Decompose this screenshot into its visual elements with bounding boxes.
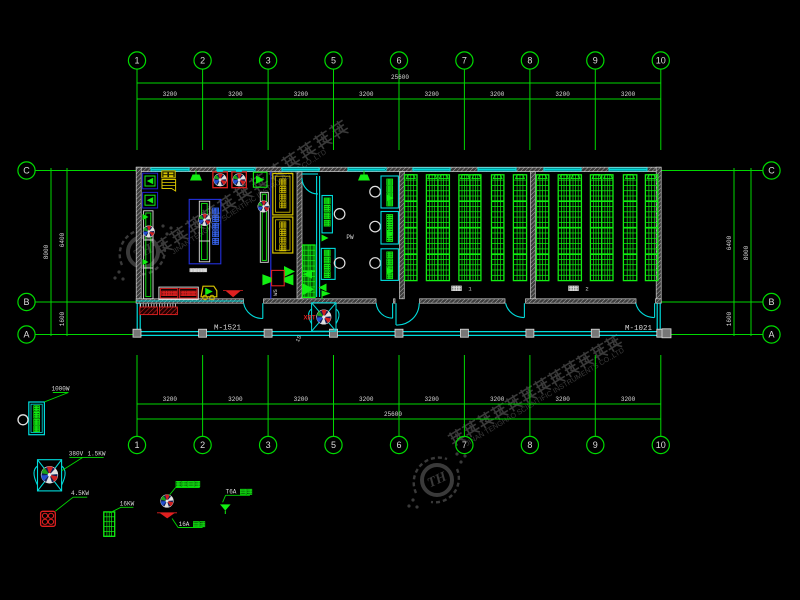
svg-text:3: 3	[266, 56, 271, 66]
svg-text:25600: 25600	[391, 74, 409, 81]
svg-text:A: A	[23, 330, 29, 340]
svg-text:3200: 3200	[228, 396, 243, 403]
svg-text:B: B	[768, 297, 774, 307]
svg-text:3200: 3200	[490, 91, 505, 98]
svg-text:WS: WS	[272, 289, 279, 296]
svg-text:7: 7	[462, 440, 467, 450]
svg-text:3200: 3200	[555, 396, 570, 403]
svg-text:9: 9	[593, 56, 598, 66]
svg-text:3200: 3200	[621, 91, 636, 98]
svg-text:6400: 6400	[726, 235, 733, 250]
svg-text:3200: 3200	[555, 91, 570, 98]
svg-text:M-1521: M-1521	[214, 325, 242, 333]
svg-text:25600: 25600	[384, 411, 402, 418]
svg-text:2: 2	[200, 56, 205, 66]
svg-text:1000W: 1000W	[51, 386, 69, 393]
svg-text:1: 1	[134, 56, 139, 66]
svg-text:1.5KW: 1.5KW	[87, 450, 105, 457]
svg-text:1600: 1600	[726, 311, 733, 326]
svg-text:16A: 16A	[179, 521, 190, 528]
svg-text:9: 9	[593, 440, 598, 450]
svg-text:4.5KW: 4.5KW	[71, 490, 89, 497]
svg-text:XBT: XBT	[304, 316, 316, 322]
svg-text:T6A: T6A	[226, 489, 237, 496]
svg-text:3200: 3200	[294, 396, 309, 403]
svg-text:3200: 3200	[228, 91, 243, 98]
svg-text:A: A	[768, 330, 774, 340]
svg-text:3200: 3200	[294, 91, 309, 98]
svg-text:3200: 3200	[163, 91, 178, 98]
svg-text:8: 8	[527, 56, 532, 66]
svg-text:7: 7	[462, 56, 467, 66]
svg-text:8: 8	[527, 440, 532, 450]
svg-text:3: 3	[266, 440, 271, 450]
svg-text:PW: PW	[346, 234, 354, 241]
svg-text:C: C	[768, 166, 775, 176]
svg-text:6400: 6400	[59, 232, 66, 247]
svg-text:M-1021: M-1021	[625, 325, 653, 333]
svg-text:6: 6	[396, 56, 401, 66]
svg-text:3200: 3200	[359, 91, 374, 98]
svg-text:3200: 3200	[359, 396, 374, 403]
svg-text:2: 2	[200, 440, 205, 450]
svg-text:6: 6	[396, 440, 401, 450]
svg-text:1600: 1600	[59, 311, 66, 326]
svg-text:2: 2	[585, 285, 588, 292]
svg-text:10: 10	[656, 440, 666, 450]
svg-text:8000: 8000	[743, 245, 750, 260]
svg-text:8000: 8000	[43, 244, 50, 259]
svg-text:3200: 3200	[490, 396, 505, 403]
svg-text:3200: 3200	[621, 396, 636, 403]
svg-text:5: 5	[331, 56, 336, 66]
svg-text:1: 1	[134, 440, 139, 450]
svg-text:3200: 3200	[163, 396, 178, 403]
svg-text:16KW: 16KW	[120, 500, 135, 507]
svg-text:3200: 3200	[424, 91, 439, 98]
svg-text:C: C	[23, 166, 30, 176]
svg-text:380V: 380V	[69, 450, 84, 457]
svg-text:5: 5	[331, 440, 336, 450]
svg-text:10: 10	[656, 56, 666, 66]
svg-text:B: B	[23, 297, 29, 307]
svg-text:3200: 3200	[424, 396, 439, 403]
